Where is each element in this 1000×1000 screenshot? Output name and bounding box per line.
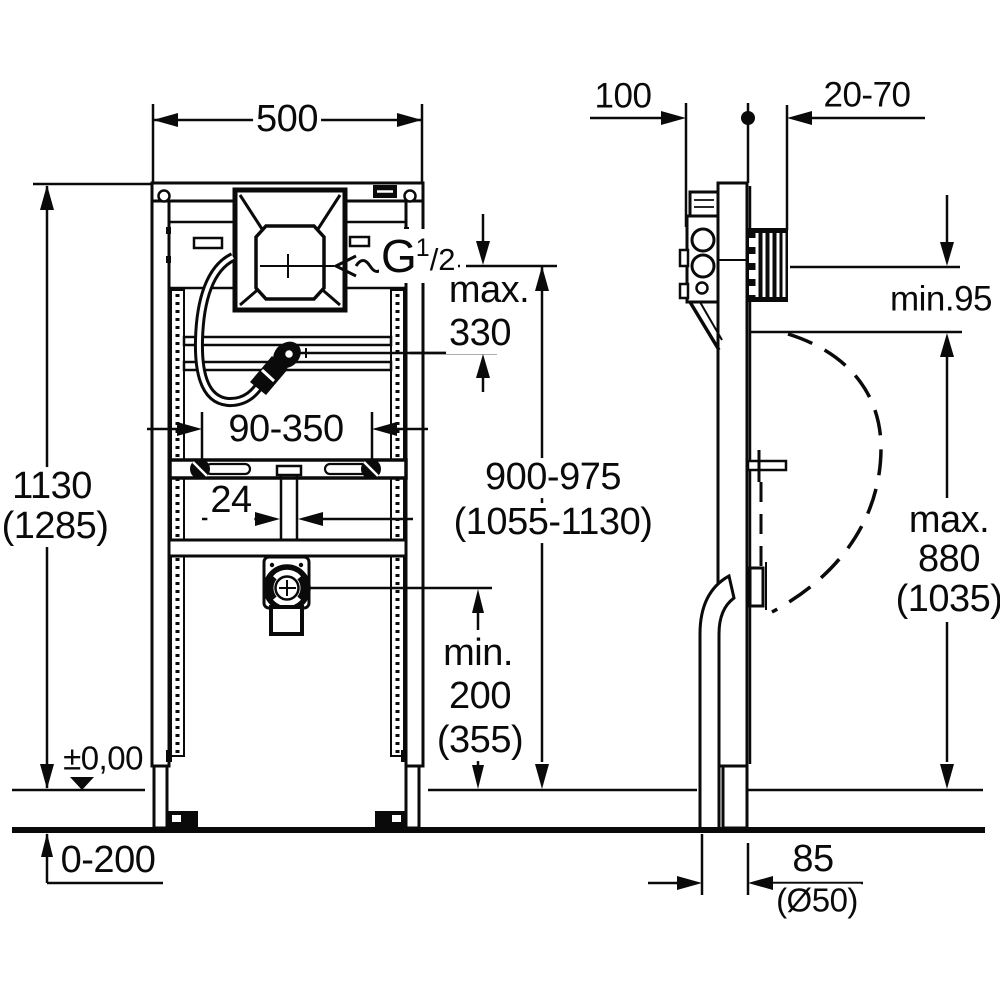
zero-level-label: ±0,00 [60,742,146,777]
installation-drawing: 500 100 20-70 G1/2 max. 330 min.95 1130 … [0,0,1000,1000]
wall-reference-dot [741,111,755,125]
dim-label-supply-max-value: 330 [446,314,514,354]
side-view-frame [718,183,750,828]
dim-label-rim-height-word: max. [906,501,992,541]
urinal-outlet [750,562,766,610]
dim-label-flush-height-alt: (1055-1130) [451,503,656,543]
dimension-100 [590,103,686,227]
dim-label-rim-clearance: min.95 [887,282,995,319]
dimension-20-70 [741,103,925,230]
urinal-mounting-pin [748,450,786,482]
dim-label-drain-min-value: 200 [446,677,514,717]
dim-label-top-depth: 100 [592,79,655,116]
dim-label-drain-min-alt: (355) [434,721,526,761]
mounting-rail-right [391,290,404,756]
ground-line [12,827,985,833]
flush-connection-funnel [235,190,345,310]
mounting-rail-left [171,290,184,756]
dim-label-flush-height: 900-975 [482,458,624,498]
dim-label-bracket-range: 90-350 [225,410,346,450]
urinal-dashed-outline [761,334,881,612]
dim-label-drain-min-word: min. [440,634,516,674]
corner-screw-icon [159,191,170,202]
dim-label-pipe-width: 24 [207,481,254,521]
dim-label-rim-height-alt: (1035) [893,580,1000,620]
level-mark-icon [70,777,94,790]
dim-label-frame-width: 500 [253,100,321,140]
flush-pipe-sleeve [747,228,788,302]
dim-label-wall-offset: 20-70 [820,78,913,115]
dim-label-supply-max-word: max. [446,271,532,311]
corner-screw-icon [405,191,416,202]
dim-label-drain-offset: 85 [789,840,836,880]
dim-label-drain-diameter: (Ø50) [773,884,861,919]
dim-label-frame-height-alt: (1285) [0,507,111,547]
thread-letter: G [381,230,416,282]
dim-label-rim-height-value: 880 [915,540,983,580]
dim-label-frame-height: 1130 [9,467,95,507]
frame-feet [154,750,419,828]
thread-numerator: 1 [416,234,430,262]
dim-label-floor-range: 0-200 [58,841,159,881]
